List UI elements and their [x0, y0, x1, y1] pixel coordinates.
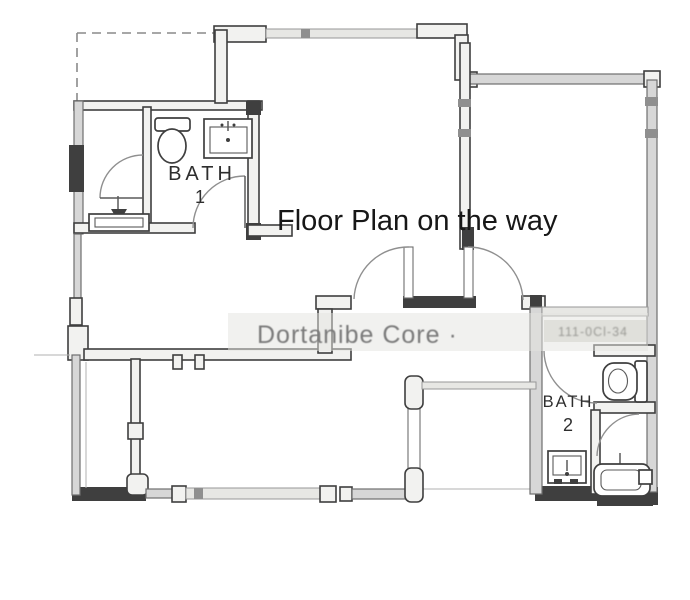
wall-right-tick-1: [645, 97, 658, 106]
bath2-label: BATH: [543, 393, 594, 411]
wall-right-outer: [647, 80, 657, 492]
wall-bottom-jamb-2: [320, 486, 336, 502]
tub2-connector: [639, 470, 652, 484]
wall-strip-divider-pad: [128, 423, 143, 439]
sink1-handle-left: [221, 124, 224, 127]
wall-strip-divider-foot: [127, 474, 148, 495]
wall-hall-left-post: [316, 296, 351, 309]
window-top-tick: [301, 29, 310, 38]
floor-plan-drawing: Dortanibe Core · 111-0Cl-34 Floor Plan o…: [0, 0, 690, 600]
window-top: [266, 29, 419, 38]
bathtub-icon: [594, 464, 652, 496]
wall-center-thin-divider: [422, 382, 536, 389]
wall-bottom-jamb-3: [340, 487, 352, 501]
watermark-stamp: 111-0Cl-34: [558, 325, 628, 339]
wall-center-post-top: [405, 376, 423, 409]
vanity2-foot-left: [554, 479, 562, 484]
sink1-drain: [226, 138, 230, 142]
wall-bath1-top: [74, 101, 262, 110]
toilet-icon: [155, 118, 190, 163]
wall-hall-stub-left: [404, 247, 413, 298]
overlay-title: Floor Plan on the way: [277, 205, 558, 237]
ped1-counter: [89, 214, 149, 231]
watermark-text: Dortanibe Core ·: [257, 321, 458, 349]
toilet-icon: [603, 361, 647, 402]
wall-bottom-jamb-1: [172, 486, 186, 502]
wall-bath1-left-pad: [69, 145, 84, 192]
wall-connector-vertical: [215, 30, 227, 103]
window-bottom: [186, 488, 323, 499]
wall-right-tick-2: [645, 129, 658, 138]
wall-hall-stub-right: [464, 247, 473, 298]
wall-bedroom-left-tick-2: [458, 129, 471, 137]
toilet1-bowl: [158, 129, 186, 163]
wall-lower-jamb-2: [195, 355, 204, 369]
wall-center-post-bottom: [405, 468, 423, 502]
sink1-handle-right: [233, 124, 236, 127]
wall-wc-bottom: [594, 402, 655, 413]
window-bottom-tick: [194, 488, 203, 499]
floor-plan-page: Dortanibe Core · 111-0Cl-34 Floor Plan o…: [0, 0, 690, 600]
wall-bottom-gray-2: [352, 489, 408, 499]
door-swing-hall-right: [468, 247, 523, 300]
wall-bath1-right-cap-top: [246, 101, 261, 115]
door-swing-hall-left: [354, 247, 409, 299]
bath1-label: BATH: [168, 163, 236, 185]
door-swing-closet: [100, 155, 143, 198]
vanity-icon: [548, 451, 586, 484]
sink-icon: [204, 119, 252, 158]
bath1-number: 1: [195, 187, 205, 207]
wall-bedroom-top: [462, 74, 652, 84]
wall-lower-jamb-1: [173, 355, 182, 369]
dashed-outline: [77, 33, 216, 101]
wall-center-opening: [408, 405, 420, 473]
wall-left-outer-low: [72, 355, 80, 495]
vanity2-foot-right: [570, 479, 578, 484]
pedestal-sink-icon: [89, 196, 149, 231]
bath2-number: 2: [563, 415, 573, 435]
door-swing-wc: [597, 414, 639, 456]
vanity2-drain: [565, 472, 569, 476]
wall-bath1-closet-divider: [143, 107, 151, 231]
wall-bedroom-left-tick-1: [458, 99, 471, 107]
wall-left-pad-small: [70, 298, 82, 325]
